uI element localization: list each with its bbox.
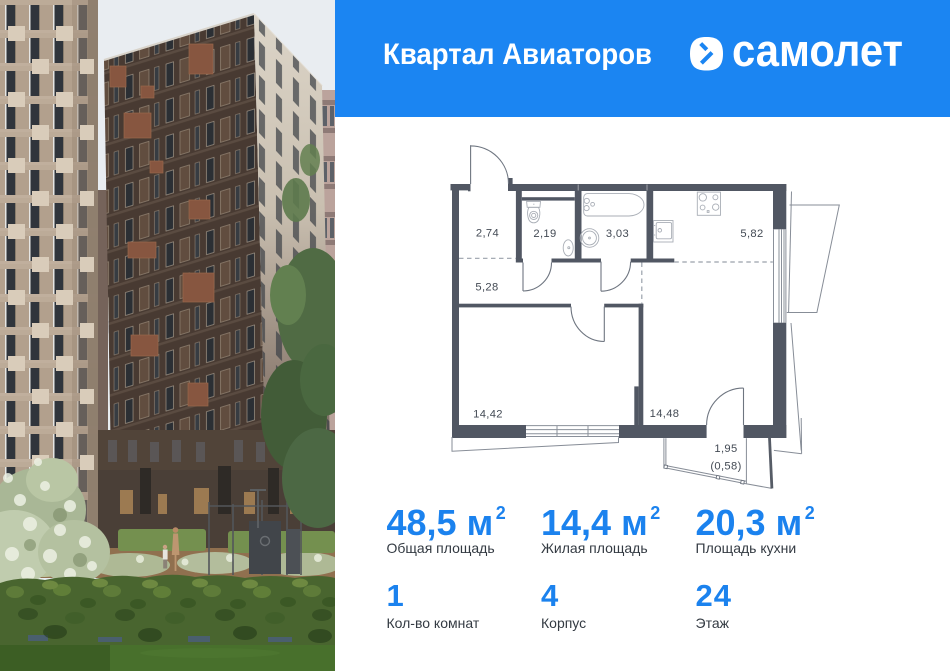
svg-text:14,48: 14,48 [650,408,680,420]
svg-text:3,03: 3,03 [606,228,629,240]
svg-text:2,74: 2,74 [476,228,499,240]
svg-text:2,19: 2,19 [533,228,556,240]
svg-text:5,82: 5,82 [740,228,763,240]
svg-text:самолет: самолет [732,30,903,76]
svg-text:Квартал Авиаторов: Квартал Авиаторов [383,38,652,71]
svg-text:14,42: 14,42 [473,409,503,421]
svg-text:5,28: 5,28 [475,282,498,294]
svg-text:(0,58): (0,58) [710,461,741,473]
svg-text:1,95: 1,95 [714,443,737,455]
